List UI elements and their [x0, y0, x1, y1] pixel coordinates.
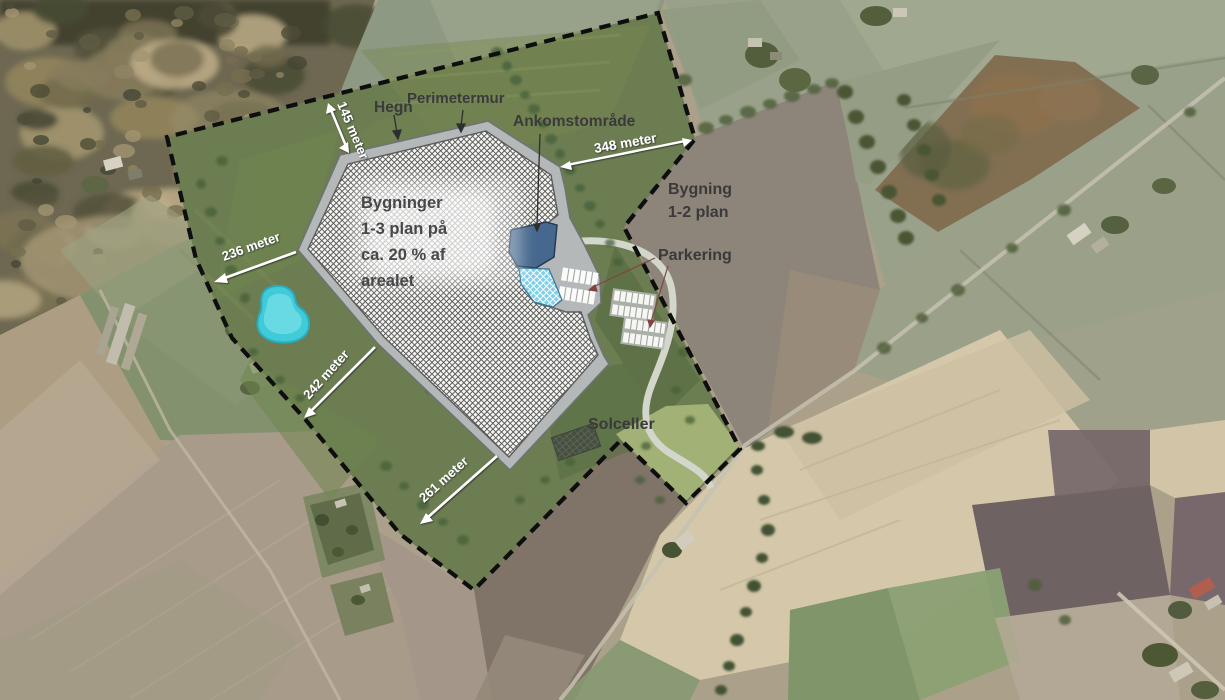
- svg-text:arealet: arealet: [361, 272, 415, 290]
- svg-text:1-2 plan: 1-2 plan: [668, 204, 728, 221]
- svg-text:Bygninger: Bygninger: [361, 194, 443, 212]
- svg-text:Solceller: Solceller: [588, 416, 655, 433]
- svg-text:ca. 20 % af: ca. 20 % af: [361, 246, 446, 264]
- svg-text:Ankomstområde: Ankomstområde: [513, 113, 636, 130]
- svg-text:1-3 plan på: 1-3 plan på: [361, 220, 448, 238]
- svg-text:Bygning: Bygning: [668, 181, 732, 198]
- svg-text:Parkering: Parkering: [658, 247, 732, 264]
- svg-text:Perimetermur: Perimetermur: [407, 90, 505, 107]
